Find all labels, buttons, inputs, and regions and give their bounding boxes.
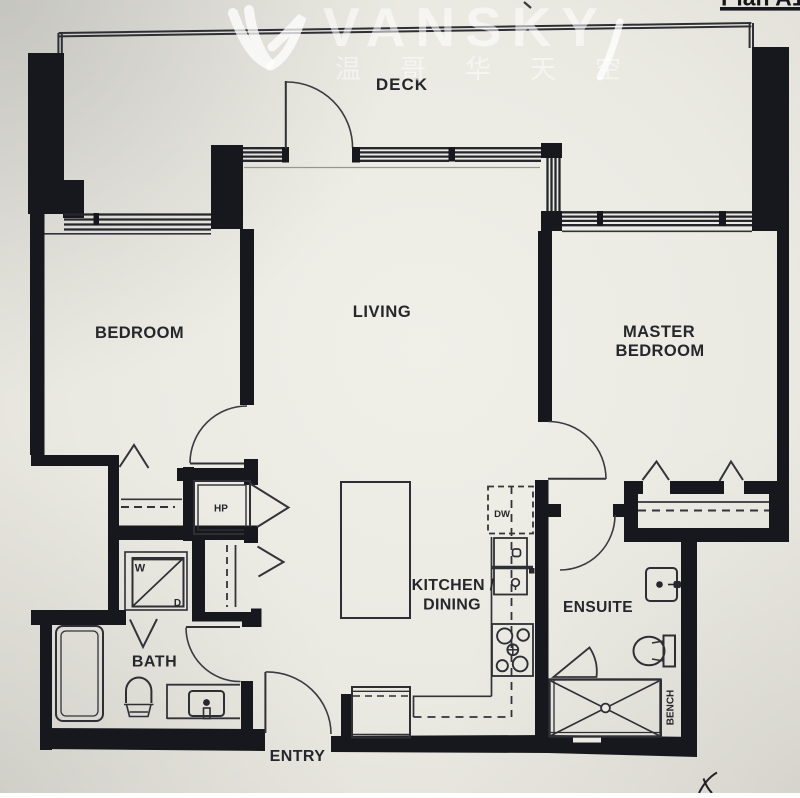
- svg-text:ENSUITE: ENSUITE: [563, 599, 633, 616]
- svg-text:BATH: BATH: [132, 654, 177, 671]
- svg-text:LIVING: LIVING: [353, 303, 412, 321]
- svg-text:BEDROOM: BEDROOM: [616, 342, 705, 360]
- svg-text:DINING: DINING: [423, 597, 481, 614]
- svg-text:BENCH: BENCH: [666, 690, 677, 726]
- svg-text:BEDROOM: BEDROOM: [95, 324, 184, 342]
- svg-text:温哥华天空: 温哥华天空: [335, 54, 660, 84]
- svg-text:HP: HP: [214, 504, 228, 515]
- svg-text:DW: DW: [494, 509, 510, 520]
- svg-text:ENTRY: ENTRY: [270, 748, 326, 765]
- svg-text:W: W: [135, 563, 146, 575]
- svg-text:VANSKY: VANSKY: [323, 0, 608, 58]
- svg-text:KITCHEN /: KITCHEN /: [412, 577, 495, 594]
- svg-text:D: D: [174, 598, 181, 609]
- svg-text:MASTER: MASTER: [623, 323, 695, 341]
